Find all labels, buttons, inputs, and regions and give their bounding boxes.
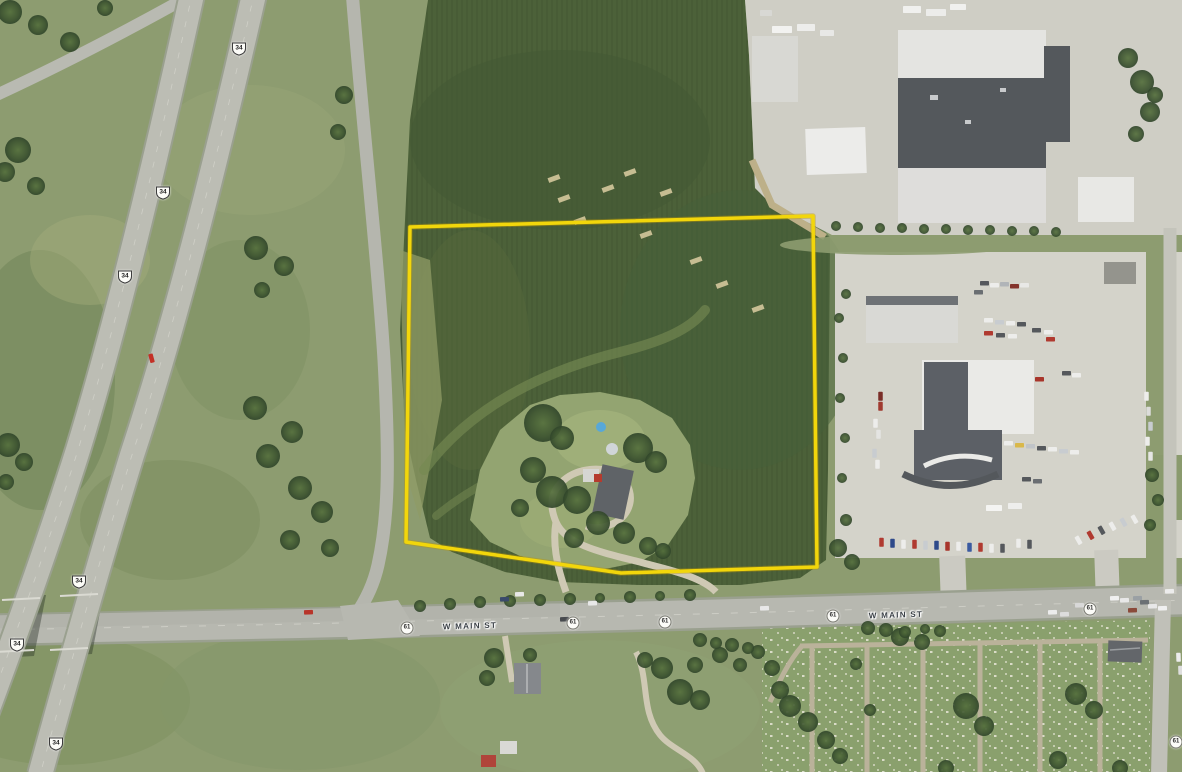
vehicle xyxy=(974,290,983,295)
vehicle xyxy=(1032,328,1041,333)
tree xyxy=(899,626,911,638)
tree xyxy=(613,522,635,544)
building xyxy=(924,362,968,432)
tree xyxy=(835,393,845,403)
vehicle xyxy=(956,542,961,551)
tree xyxy=(274,256,294,276)
tree xyxy=(0,162,15,182)
vehicle xyxy=(760,606,769,611)
vehicle xyxy=(1010,284,1019,289)
tree xyxy=(840,433,850,443)
vehicle xyxy=(984,331,993,336)
tree xyxy=(1140,102,1160,122)
vehicle xyxy=(1133,596,1142,601)
vehicle xyxy=(1178,666,1182,675)
tree xyxy=(645,451,667,473)
tree xyxy=(27,177,45,195)
vehicle xyxy=(1148,452,1153,461)
tree xyxy=(321,539,339,557)
building xyxy=(1044,46,1070,142)
tree xyxy=(1007,226,1017,236)
yard-feature xyxy=(606,443,618,455)
vehicle xyxy=(878,392,883,401)
building xyxy=(898,30,1046,80)
tree xyxy=(243,396,267,420)
tree xyxy=(710,637,722,649)
tree xyxy=(764,660,780,676)
tree xyxy=(667,679,693,705)
tree xyxy=(963,225,973,235)
tree xyxy=(829,539,847,557)
vehicle xyxy=(967,543,972,552)
tree xyxy=(841,289,851,299)
tree xyxy=(779,695,801,717)
tree xyxy=(974,716,994,736)
vehicle xyxy=(989,544,994,553)
tree xyxy=(244,236,268,260)
vehicle xyxy=(772,26,792,33)
tree xyxy=(840,514,852,526)
vehicle xyxy=(1110,596,1119,601)
building xyxy=(1108,640,1143,662)
tree xyxy=(832,748,848,764)
tree xyxy=(586,511,610,535)
vehicle xyxy=(984,318,993,323)
vehicle xyxy=(515,592,524,597)
tree xyxy=(288,476,312,500)
vehicle xyxy=(1033,479,1042,484)
tree xyxy=(651,657,673,679)
tree xyxy=(914,634,930,650)
tree xyxy=(0,0,22,24)
tree xyxy=(1065,683,1087,705)
building xyxy=(752,36,798,102)
vehicle xyxy=(990,283,999,288)
tree xyxy=(712,647,728,663)
tree xyxy=(280,530,300,550)
vehicle xyxy=(873,419,878,428)
aerial-map[interactable]: 343434343434616161616161W MAIN STW MAIN … xyxy=(0,0,1182,772)
vehicle xyxy=(1148,604,1157,609)
building xyxy=(898,168,1046,223)
tree xyxy=(534,594,546,606)
tree xyxy=(311,501,333,523)
vehicle xyxy=(872,449,877,458)
tree xyxy=(523,648,537,662)
vehicle xyxy=(1158,606,1167,611)
tree xyxy=(919,224,929,234)
tree xyxy=(725,638,739,652)
vehicle xyxy=(879,538,884,547)
vehicle xyxy=(926,9,946,16)
tree xyxy=(15,453,33,471)
vehicle xyxy=(1176,653,1181,662)
tree xyxy=(520,457,546,483)
tree xyxy=(1051,227,1061,237)
vehicle xyxy=(876,430,881,439)
tree xyxy=(831,221,841,231)
vehicle xyxy=(875,460,880,469)
vehicle xyxy=(1000,544,1005,553)
vehicle xyxy=(1148,422,1153,431)
vehicle xyxy=(1070,450,1079,455)
vehicle xyxy=(1128,608,1137,613)
tree xyxy=(564,593,576,605)
vehicle xyxy=(1048,447,1057,452)
tree xyxy=(684,589,696,601)
tree xyxy=(330,124,346,140)
vehicle xyxy=(996,333,1005,338)
tree xyxy=(1152,494,1164,506)
vehicle xyxy=(1146,407,1151,416)
tree xyxy=(693,633,707,647)
tree xyxy=(60,32,80,52)
tree xyxy=(934,625,946,637)
vehicle xyxy=(560,617,569,622)
tree xyxy=(1128,126,1144,142)
tree xyxy=(897,223,907,233)
building xyxy=(1104,262,1136,284)
vehicle xyxy=(950,4,966,10)
tree xyxy=(853,222,863,232)
vehicle xyxy=(797,24,815,31)
vehicle xyxy=(1044,330,1053,335)
tree xyxy=(479,670,495,686)
vehicle xyxy=(1004,441,1013,446)
building xyxy=(594,474,602,482)
building xyxy=(898,78,1046,170)
tree xyxy=(687,657,703,673)
tree xyxy=(1029,226,1039,236)
vehicle xyxy=(1020,283,1029,288)
tree xyxy=(834,313,844,323)
vehicle xyxy=(1060,612,1069,617)
vehicle xyxy=(1075,603,1084,608)
tree xyxy=(920,624,930,634)
tree xyxy=(817,731,835,749)
tree xyxy=(335,86,353,104)
vehicle xyxy=(978,543,983,552)
yard-feature xyxy=(596,422,606,432)
tree xyxy=(875,223,885,233)
tree xyxy=(637,652,653,668)
vehicle xyxy=(1145,437,1150,446)
vehicle xyxy=(1008,503,1022,509)
tree xyxy=(474,596,486,608)
tree xyxy=(655,591,665,601)
vehicle xyxy=(912,540,917,549)
tree xyxy=(864,704,876,716)
tree xyxy=(985,225,995,235)
vehicle xyxy=(1144,392,1149,401)
tree xyxy=(690,690,710,710)
vehicle xyxy=(1017,322,1026,327)
building xyxy=(866,296,958,305)
vehicle xyxy=(1022,477,1031,482)
vehicle xyxy=(1027,540,1032,549)
aerial-imagery xyxy=(0,0,1182,772)
vehicle xyxy=(1120,598,1129,603)
tree xyxy=(624,591,636,603)
vehicle xyxy=(1006,321,1015,326)
vehicle xyxy=(923,541,928,550)
vehicle xyxy=(980,281,989,286)
tree xyxy=(1085,701,1103,719)
vehicle xyxy=(1000,282,1009,287)
tree xyxy=(1049,751,1067,769)
tree xyxy=(1144,519,1156,531)
tree xyxy=(28,15,48,35)
vehicle xyxy=(820,30,834,36)
vehicle xyxy=(878,402,883,411)
tree xyxy=(844,554,860,570)
tree xyxy=(484,648,504,668)
vehicle xyxy=(1016,539,1021,548)
tree xyxy=(550,426,574,450)
vehicle xyxy=(945,542,950,551)
vehicle xyxy=(1165,589,1174,594)
tree xyxy=(850,658,862,670)
tree xyxy=(733,658,747,672)
building xyxy=(500,741,517,754)
tree xyxy=(1147,87,1163,103)
vehicle xyxy=(1062,371,1071,376)
vehicle xyxy=(304,610,313,615)
tree xyxy=(742,642,754,654)
vehicle xyxy=(1035,377,1044,382)
vehicle xyxy=(588,601,597,606)
vehicle xyxy=(1037,446,1046,451)
vehicle xyxy=(901,540,906,549)
vehicle xyxy=(1072,373,1081,378)
vehicle xyxy=(1048,610,1057,615)
vehicle xyxy=(760,10,772,16)
vehicle xyxy=(1140,600,1149,605)
tree xyxy=(564,528,584,548)
tree xyxy=(5,137,31,163)
tree xyxy=(655,543,671,559)
tree xyxy=(953,693,979,719)
tree xyxy=(941,224,951,234)
tree xyxy=(256,444,280,468)
vehicle xyxy=(986,505,1002,511)
tree xyxy=(97,0,113,16)
tree xyxy=(536,476,568,508)
vehicle xyxy=(1026,444,1035,449)
tree xyxy=(444,598,456,610)
building xyxy=(805,127,867,175)
vehicle xyxy=(1008,334,1017,339)
vehicle xyxy=(500,597,509,602)
vehicle xyxy=(1059,449,1068,454)
tree xyxy=(837,473,847,483)
tree xyxy=(414,600,426,612)
vehicle xyxy=(1046,337,1055,342)
tree xyxy=(254,282,270,298)
cemetery xyxy=(762,620,1150,772)
vehicle xyxy=(995,320,1004,325)
tree xyxy=(281,421,303,443)
tree xyxy=(563,486,591,514)
tree xyxy=(639,537,657,555)
building xyxy=(481,755,496,767)
tree xyxy=(879,623,893,637)
tree xyxy=(838,353,848,363)
tree xyxy=(798,712,818,732)
tree xyxy=(1145,468,1159,482)
vehicle xyxy=(1015,443,1024,448)
vehicle xyxy=(934,541,939,550)
vehicle xyxy=(903,6,921,13)
tree xyxy=(1118,48,1138,68)
tree xyxy=(511,499,529,517)
vehicle xyxy=(890,539,895,548)
tree xyxy=(861,621,875,635)
building xyxy=(1078,177,1134,222)
